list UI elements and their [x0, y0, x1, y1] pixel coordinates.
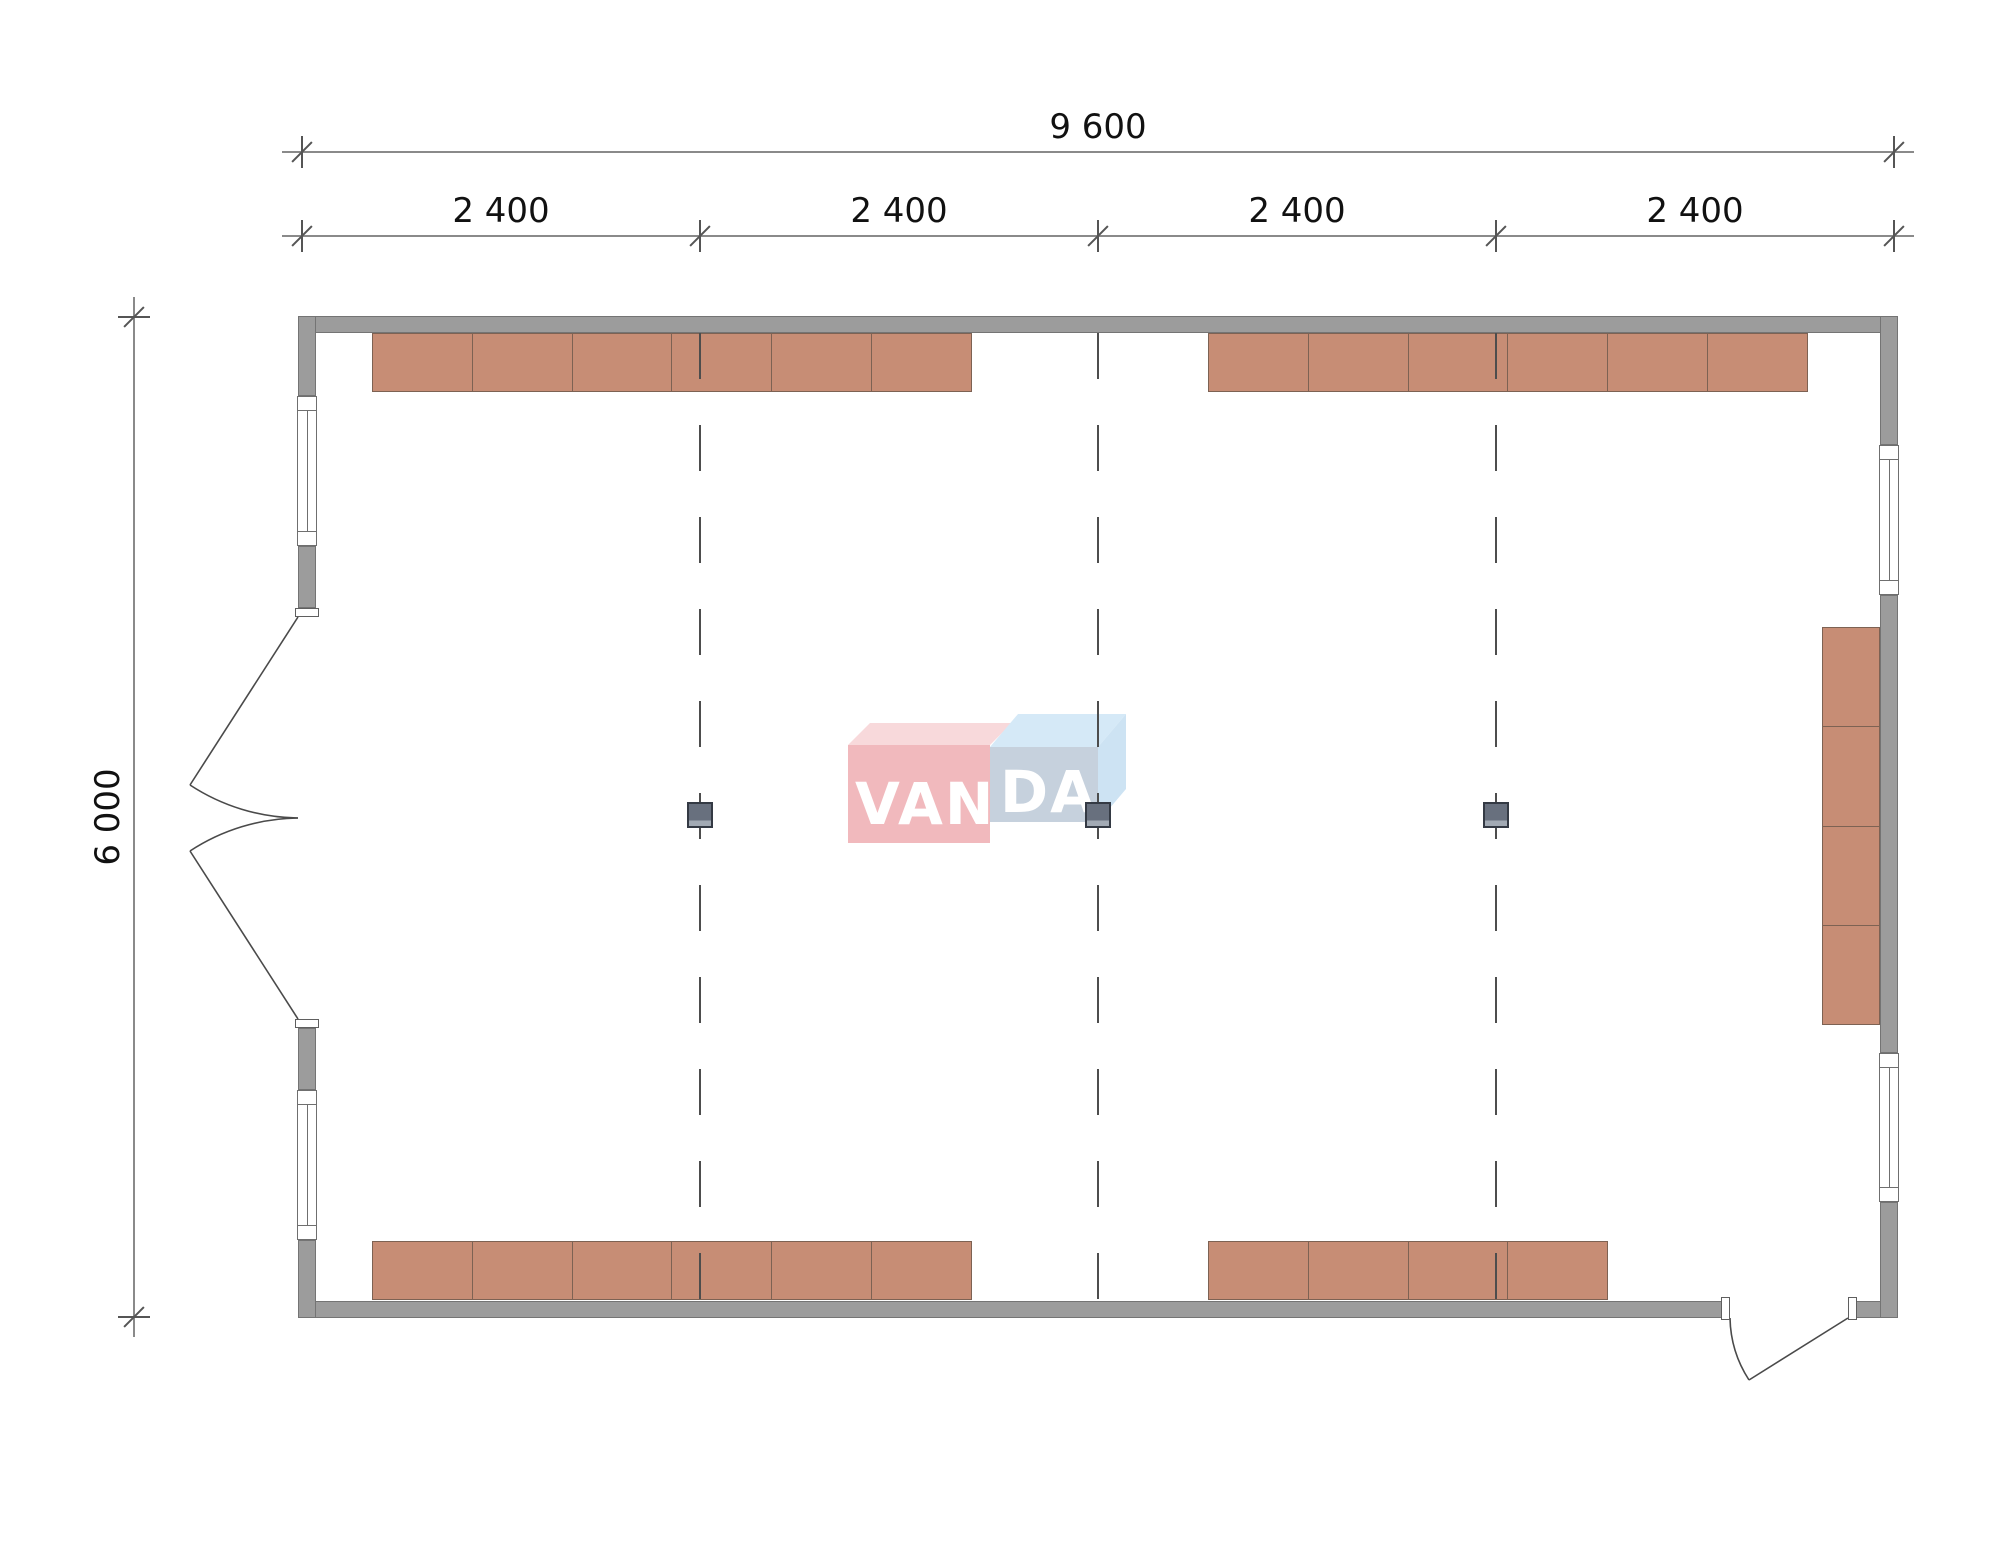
wall-west-segment	[298, 316, 316, 396]
cabinet-module	[1507, 334, 1607, 391]
cabinet-module	[472, 334, 572, 391]
window-frame-line	[298, 410, 316, 411]
logo-red-box-top-face	[848, 723, 1012, 745]
cabinet-module	[1408, 1242, 1508, 1299]
cabinet-module	[871, 334, 971, 391]
door-jamb	[295, 608, 319, 617]
wall-west-segment	[298, 546, 316, 608]
dim-label-bay-4: 2 400	[1646, 191, 1743, 231]
cabinet-module	[1408, 334, 1508, 391]
window-frame-line	[1880, 1187, 1898, 1188]
cabinet-module	[771, 1242, 871, 1299]
floor-plan-canvas: VAN DA	[0, 0, 2000, 1550]
column	[687, 802, 713, 828]
cabinet-run-bottom-right	[1208, 1241, 1608, 1300]
cabinet-module	[572, 1242, 672, 1299]
door-jamb	[1848, 1297, 1857, 1320]
window-glass-line	[1889, 1067, 1890, 1188]
door-leaf	[190, 617, 298, 785]
cabinet-module	[771, 334, 871, 391]
dim-label-overall-depth: 6 000	[88, 768, 128, 865]
door-jamb	[295, 1019, 319, 1028]
dim-label-bay-1: 2 400	[452, 191, 549, 231]
cabinet-module	[1308, 334, 1408, 391]
window-glass-line	[307, 1104, 308, 1226]
window-east-upper	[1879, 445, 1899, 595]
dim-label-bay-2: 2 400	[850, 191, 947, 231]
dimension-line	[282, 151, 1914, 153]
wall-west-segment	[298, 1028, 316, 1090]
bottom-door-swing	[1730, 1318, 1848, 1380]
column	[1483, 802, 1509, 828]
wall-east-segment	[1880, 1202, 1898, 1318]
logo-blue-box-front-face	[990, 747, 1098, 822]
window-frame-line	[298, 531, 316, 532]
window-frame-line	[1880, 580, 1898, 581]
cabinet-module	[671, 1242, 771, 1299]
logo-text-van: VAN	[855, 770, 995, 838]
door-swing-arc	[1730, 1318, 1749, 1380]
column	[1085, 802, 1111, 828]
cabinet-module	[373, 1242, 472, 1299]
wall-east-segment	[1880, 595, 1898, 1053]
door-swing-arc	[190, 818, 298, 851]
window-glass-line	[307, 410, 308, 532]
cabinet-module	[1707, 334, 1807, 391]
door-jamb	[1721, 1297, 1730, 1320]
cabinet-module	[1823, 726, 1879, 825]
cabinet-module	[1308, 1242, 1408, 1299]
wall-east-segment	[1880, 316, 1898, 445]
window-frame-line	[1880, 1067, 1898, 1068]
cabinet-module	[1823, 826, 1879, 925]
cabinet-module	[1209, 334, 1308, 391]
wall-south-left	[298, 1301, 1730, 1318]
cabinet-module	[1607, 334, 1707, 391]
door-leaf	[190, 851, 298, 1019]
cabinet-module	[1823, 628, 1879, 726]
dim-label-overall-width: 9 600	[1049, 107, 1146, 147]
wall-west-segment	[298, 1240, 316, 1318]
cabinet-module	[1209, 1242, 1308, 1299]
window-frame-line	[1880, 459, 1898, 460]
cabinet-module	[1507, 1242, 1607, 1299]
cabinet-run-top-right	[1208, 333, 1808, 392]
wall-north	[298, 316, 1898, 333]
logo-red-box-front-face	[848, 745, 990, 843]
left-double-door-swing	[190, 617, 298, 1019]
cabinet-module	[472, 1242, 572, 1299]
cabinet-run-top-left	[372, 333, 972, 392]
window-west-lower	[297, 1090, 317, 1240]
logo-text-da: DA	[1000, 758, 1097, 826]
window-glass-line	[1889, 459, 1890, 581]
cabinet-run-right-wall	[1822, 627, 1880, 1025]
dimension-line	[133, 297, 135, 1337]
door-swing-arc	[190, 785, 298, 818]
door-leaf	[1749, 1318, 1848, 1380]
window-frame-line	[298, 1104, 316, 1105]
cabinet-module	[1823, 925, 1879, 1024]
window-frame-line	[298, 1225, 316, 1226]
cabinet-module	[373, 334, 472, 391]
logo-blue-box-top-face	[990, 714, 1126, 747]
dim-label-bay-3: 2 400	[1248, 191, 1345, 231]
window-west-upper	[297, 396, 317, 546]
cabinet-module	[871, 1242, 971, 1299]
cabinet-module	[572, 334, 672, 391]
window-east-lower	[1879, 1053, 1899, 1202]
cabinet-module	[671, 334, 771, 391]
cabinet-run-bottom-left	[372, 1241, 972, 1300]
